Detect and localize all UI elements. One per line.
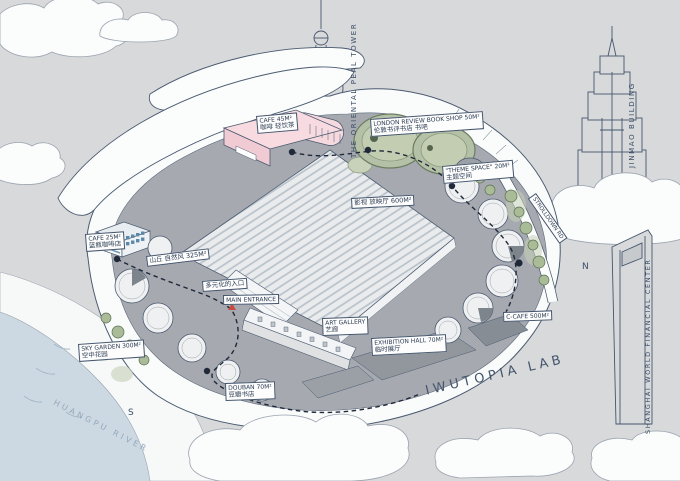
label-main-entrance-en: MAIN ENTRANCE xyxy=(226,296,276,304)
label-douban: DOUBAN 70M² 豆瓣书店 xyxy=(225,381,275,401)
label-oriental-pearl-tower: THE ORIENTAL PEAL TOWER xyxy=(350,23,358,158)
label-cafe-left: CAFE 25M² 蓝瓶咖啡店 xyxy=(85,231,125,252)
compass-south: S xyxy=(128,408,134,418)
compass-south-letter: S xyxy=(128,408,134,418)
label-douban-zh: 豆瓣书店 xyxy=(228,391,272,400)
label-art-gallery-zh: 艺廊 xyxy=(325,326,365,335)
illustration-canvas: CAFE 45M² 咖啡 轻饮茶 LONDON REVIEW BOOK SHOP… xyxy=(0,0,680,481)
label-main-entrance: MAIN ENTRANCE xyxy=(223,294,279,305)
label-c-cafe: C-CAFE 500M² xyxy=(503,310,552,322)
jinmao-building-name: JINMAO BUILDING xyxy=(628,82,636,168)
label-jinmao-building: JINMAO BUILDING xyxy=(628,82,636,168)
swfc-name: SHANGHAI WORLD FINANCIAL CENTER xyxy=(644,258,652,434)
oriental-pearl-tower-name: THE ORIENTAL PEAL TOWER xyxy=(350,23,358,158)
compass-north-letter: N xyxy=(582,262,589,272)
compass-north: N xyxy=(582,262,589,272)
label-cafe-top-zh: 咖啡 轻饮茶 xyxy=(260,122,295,133)
label-cinema-zh: 影视 放映厅 600M² xyxy=(354,197,412,208)
label-c-cafe-en: C-CAFE 500M² xyxy=(506,312,549,321)
label-cafe-left-zh: 蓝瓶咖啡店 xyxy=(89,241,122,251)
label-art-gallery: ART GALLERY 艺廊 xyxy=(322,316,369,336)
label-cafe-top: CAFE 45M² 咖啡 轻饮茶 xyxy=(256,112,298,133)
label-entrance-cn-zh: 多元化的入口 xyxy=(205,280,244,290)
label-swfc: SHANGHAI WORLD FINANCIAL CENTER xyxy=(644,258,652,434)
